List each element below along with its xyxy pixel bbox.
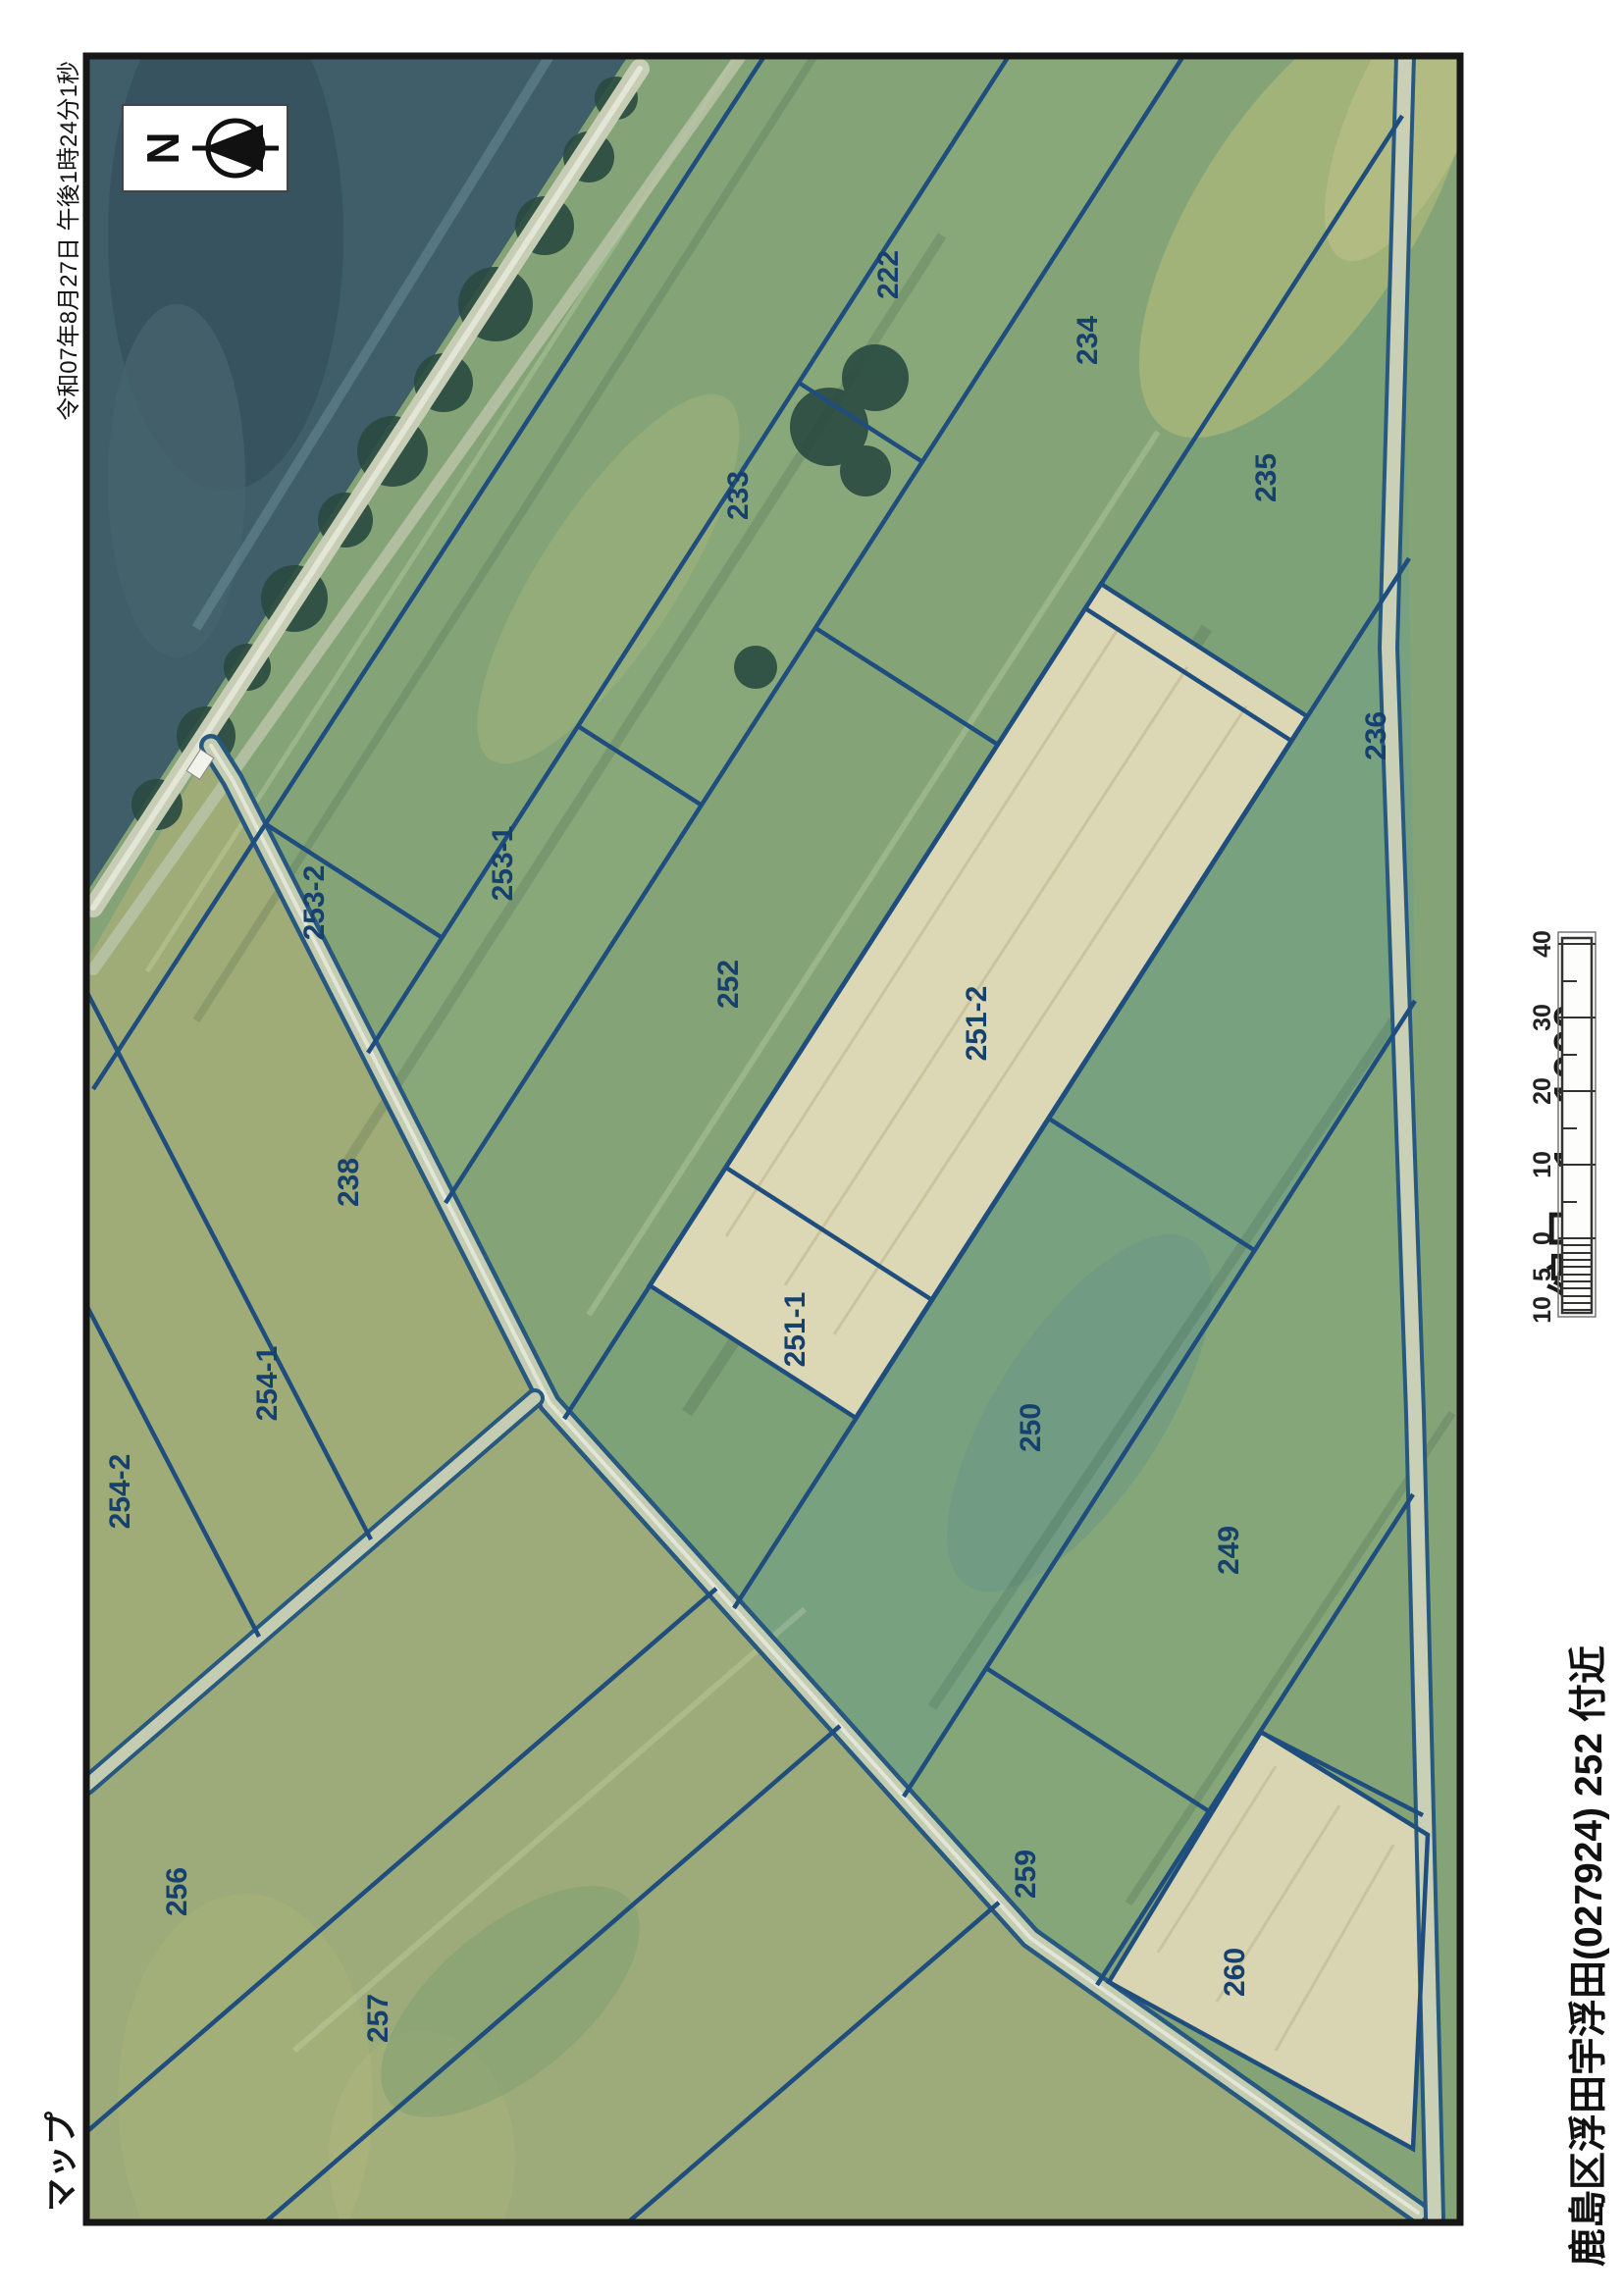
parcel-label-251-1: 251-1 xyxy=(779,1292,811,1368)
parcel-label-252: 252 xyxy=(712,960,745,1009)
north-compass: N xyxy=(123,105,288,191)
app-title: マップ xyxy=(43,2112,80,2212)
scale-rule xyxy=(1562,938,1592,1313)
aerial-photo: 222233234235236238249250251-1251-2252253… xyxy=(86,0,1537,2296)
scale-tick-label: 40 xyxy=(1529,930,1556,958)
scale-tick-label: 5 xyxy=(1529,1268,1556,1281)
parcel-label-254-1: 254-1 xyxy=(251,1346,284,1422)
scale-bar: 縮尺 1 : 1000 105010203040 xyxy=(1529,930,1596,1324)
location-caption: 鹿島区浮田宇浮田(027924) 252 付近 xyxy=(1568,1645,1610,2267)
parcel-label-234: 234 xyxy=(1072,316,1104,365)
parcel-label-235: 235 xyxy=(1250,453,1283,502)
scale-tick-label: 0 xyxy=(1529,1231,1556,1245)
parcel-label-233: 233 xyxy=(722,471,755,520)
parcel-label-254-2: 254-2 xyxy=(104,1454,136,1530)
parcel-label-253-2: 253-2 xyxy=(298,865,331,941)
scale-tick-label: 10 xyxy=(1529,1296,1556,1324)
scale-tick-label: 30 xyxy=(1529,1004,1556,1031)
parcel-label-236: 236 xyxy=(1360,711,1392,760)
parcel-label-222: 222 xyxy=(872,250,905,299)
parcel-label-250: 250 xyxy=(1015,1403,1047,1452)
parcel-label-256: 256 xyxy=(161,1867,193,1916)
north-label: N xyxy=(137,131,188,164)
parcel-label-260: 260 xyxy=(1219,1948,1251,1997)
parcel-label-238: 238 xyxy=(333,1158,365,1207)
printed-page: マップ 令和07年8月27日 午後1時24分1秒 xyxy=(0,0,1623,2296)
parcel-label-249: 249 xyxy=(1213,1526,1245,1575)
parcel-label-251-2: 251-2 xyxy=(961,986,993,1062)
parcel-label-253-1: 253-1 xyxy=(487,826,519,902)
datetime-stamp: 令和07年8月27日 午後1時24分1秒 xyxy=(56,61,82,421)
parcel-label-259: 259 xyxy=(1010,1850,1042,1899)
map-sheet: マップ 令和07年8月27日 午後1時24分1秒 xyxy=(0,0,1623,2296)
parcel-label-257: 257 xyxy=(362,1994,394,2043)
scale-tick-label: 10 xyxy=(1529,1151,1556,1178)
scale-tick-label: 20 xyxy=(1529,1077,1556,1105)
